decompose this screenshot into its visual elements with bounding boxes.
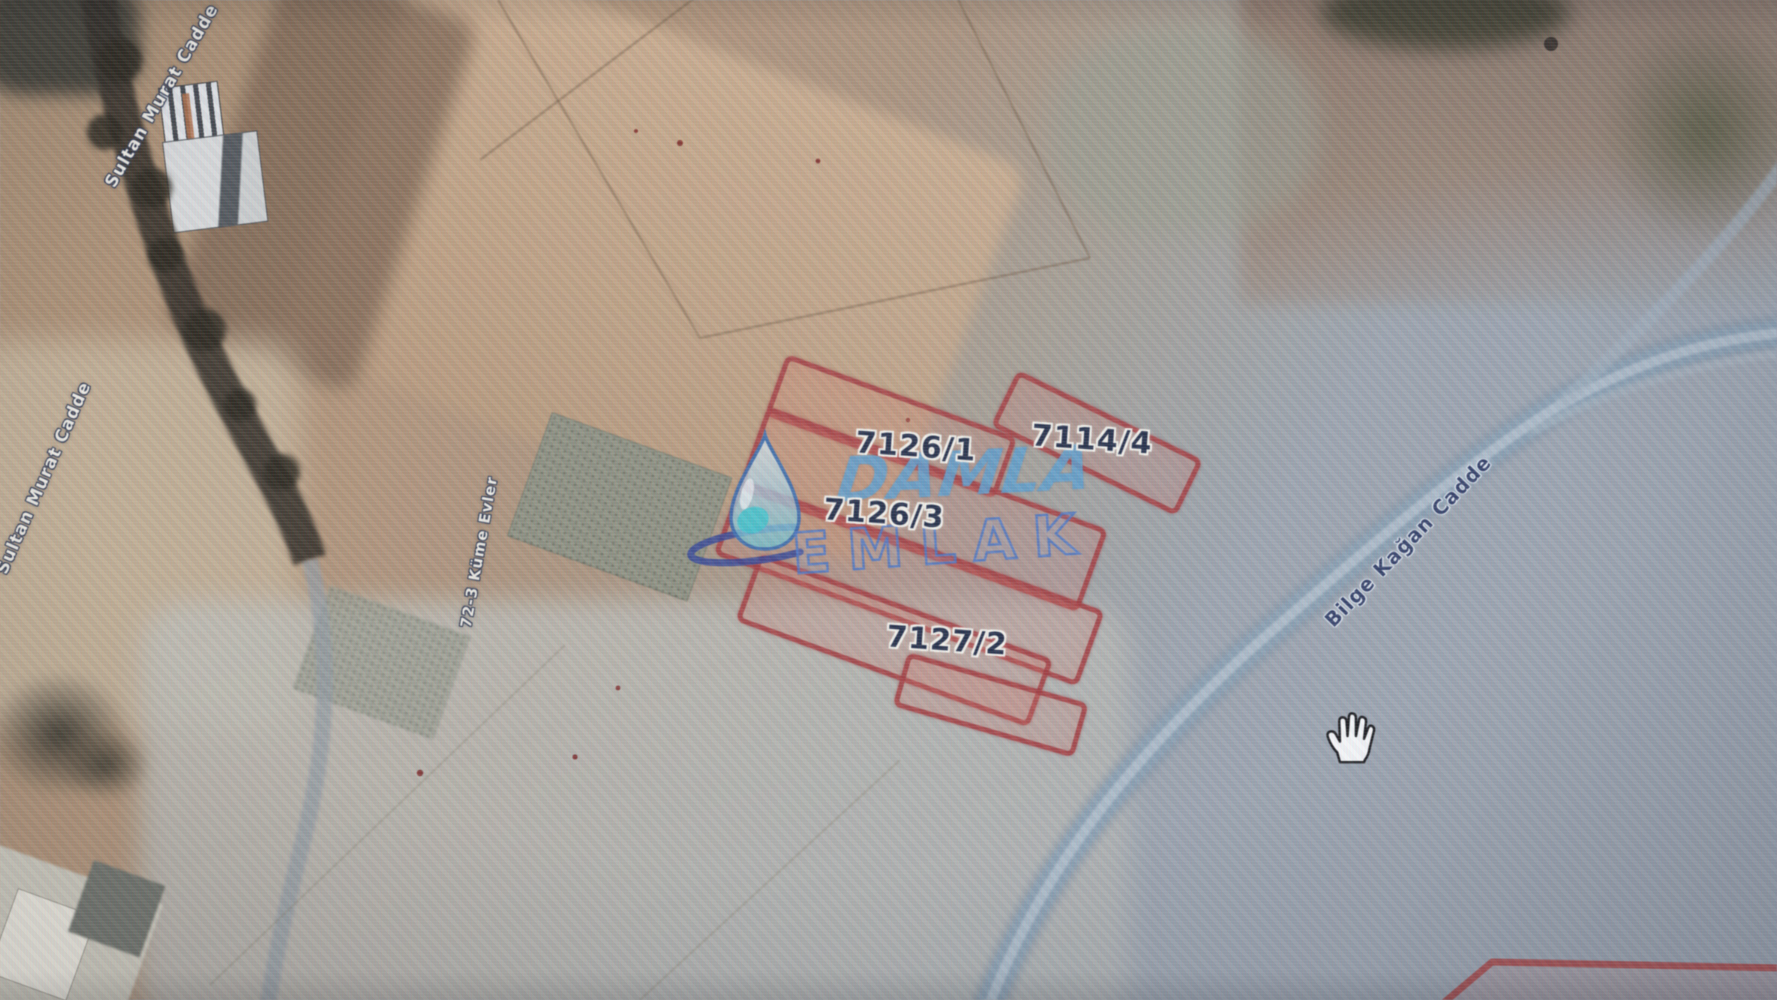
terrain-dot bbox=[1544, 37, 1558, 51]
map-canvas[interactable]: Sultan Murat Cadde Sultan Murat Cadde 72… bbox=[0, 0, 1777, 1000]
side-road bbox=[268, 560, 325, 1000]
map-screenshot: Sultan Murat Cadde Sultan Murat Cadde 72… bbox=[0, 0, 1777, 1000]
hand-grab-cursor-icon bbox=[1322, 712, 1376, 770]
partial-parcel-outline bbox=[1440, 962, 1777, 1000]
